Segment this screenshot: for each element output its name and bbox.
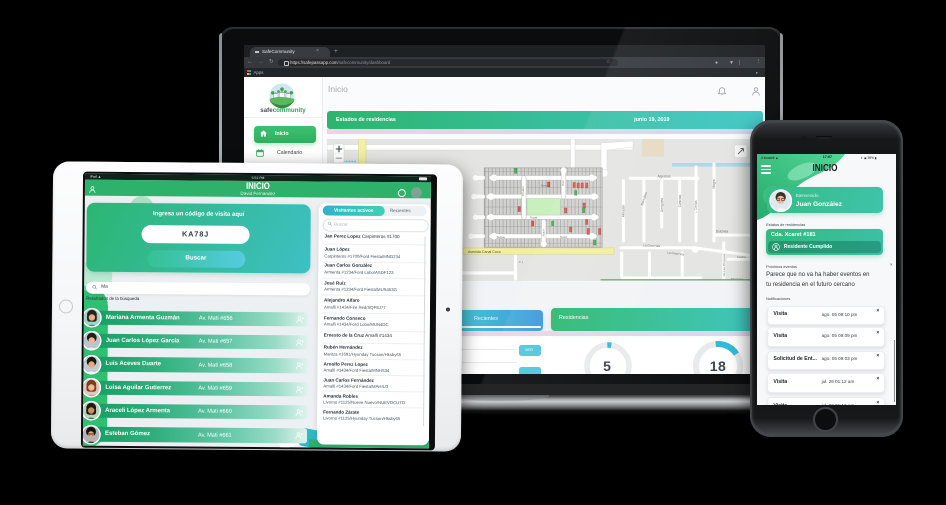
svg-text:Mágra: Mágra: [712, 179, 716, 188]
svg-text:Chubre: Chubre: [520, 186, 524, 196]
svg-text:Kuti: Kuti: [560, 180, 564, 186]
svg-text:Dulcinea: Dulcinea: [715, 229, 728, 233]
svg-text:← De las: ← De las: [694, 200, 698, 214]
svg-text:Tequa: Tequa: [496, 235, 505, 239]
svg-text:Arregueta: Arregueta: [659, 198, 663, 212]
svg-text:Nueri: Nueri: [559, 235, 567, 239]
svg-text:Canovas: Canovas: [677, 194, 681, 207]
svg-text:P 1: P 1: [519, 260, 524, 264]
svg-text:18: 18: [710, 358, 727, 374]
svg-text:Algeciras: Algeciras: [657, 174, 671, 178]
svg-text:Almadén: Almadén: [621, 204, 625, 217]
svg-text:La Gran Wa.: La Gran Wa.: [642, 244, 660, 249]
svg-text:De Las Princesas: De Las Princesas: [722, 253, 726, 276]
svg-text:Nucti: Nucti: [541, 229, 545, 236]
svg-text:Nuerbi: Nuerbi: [541, 183, 550, 187]
svg-text:5: 5: [603, 358, 611, 374]
svg-text:Lucero: Lucero: [737, 255, 746, 259]
svg-text:Tepal: Tepal: [529, 216, 537, 220]
svg-text:Avenida Canal Coco: Avenida Canal Coco: [468, 250, 501, 254]
